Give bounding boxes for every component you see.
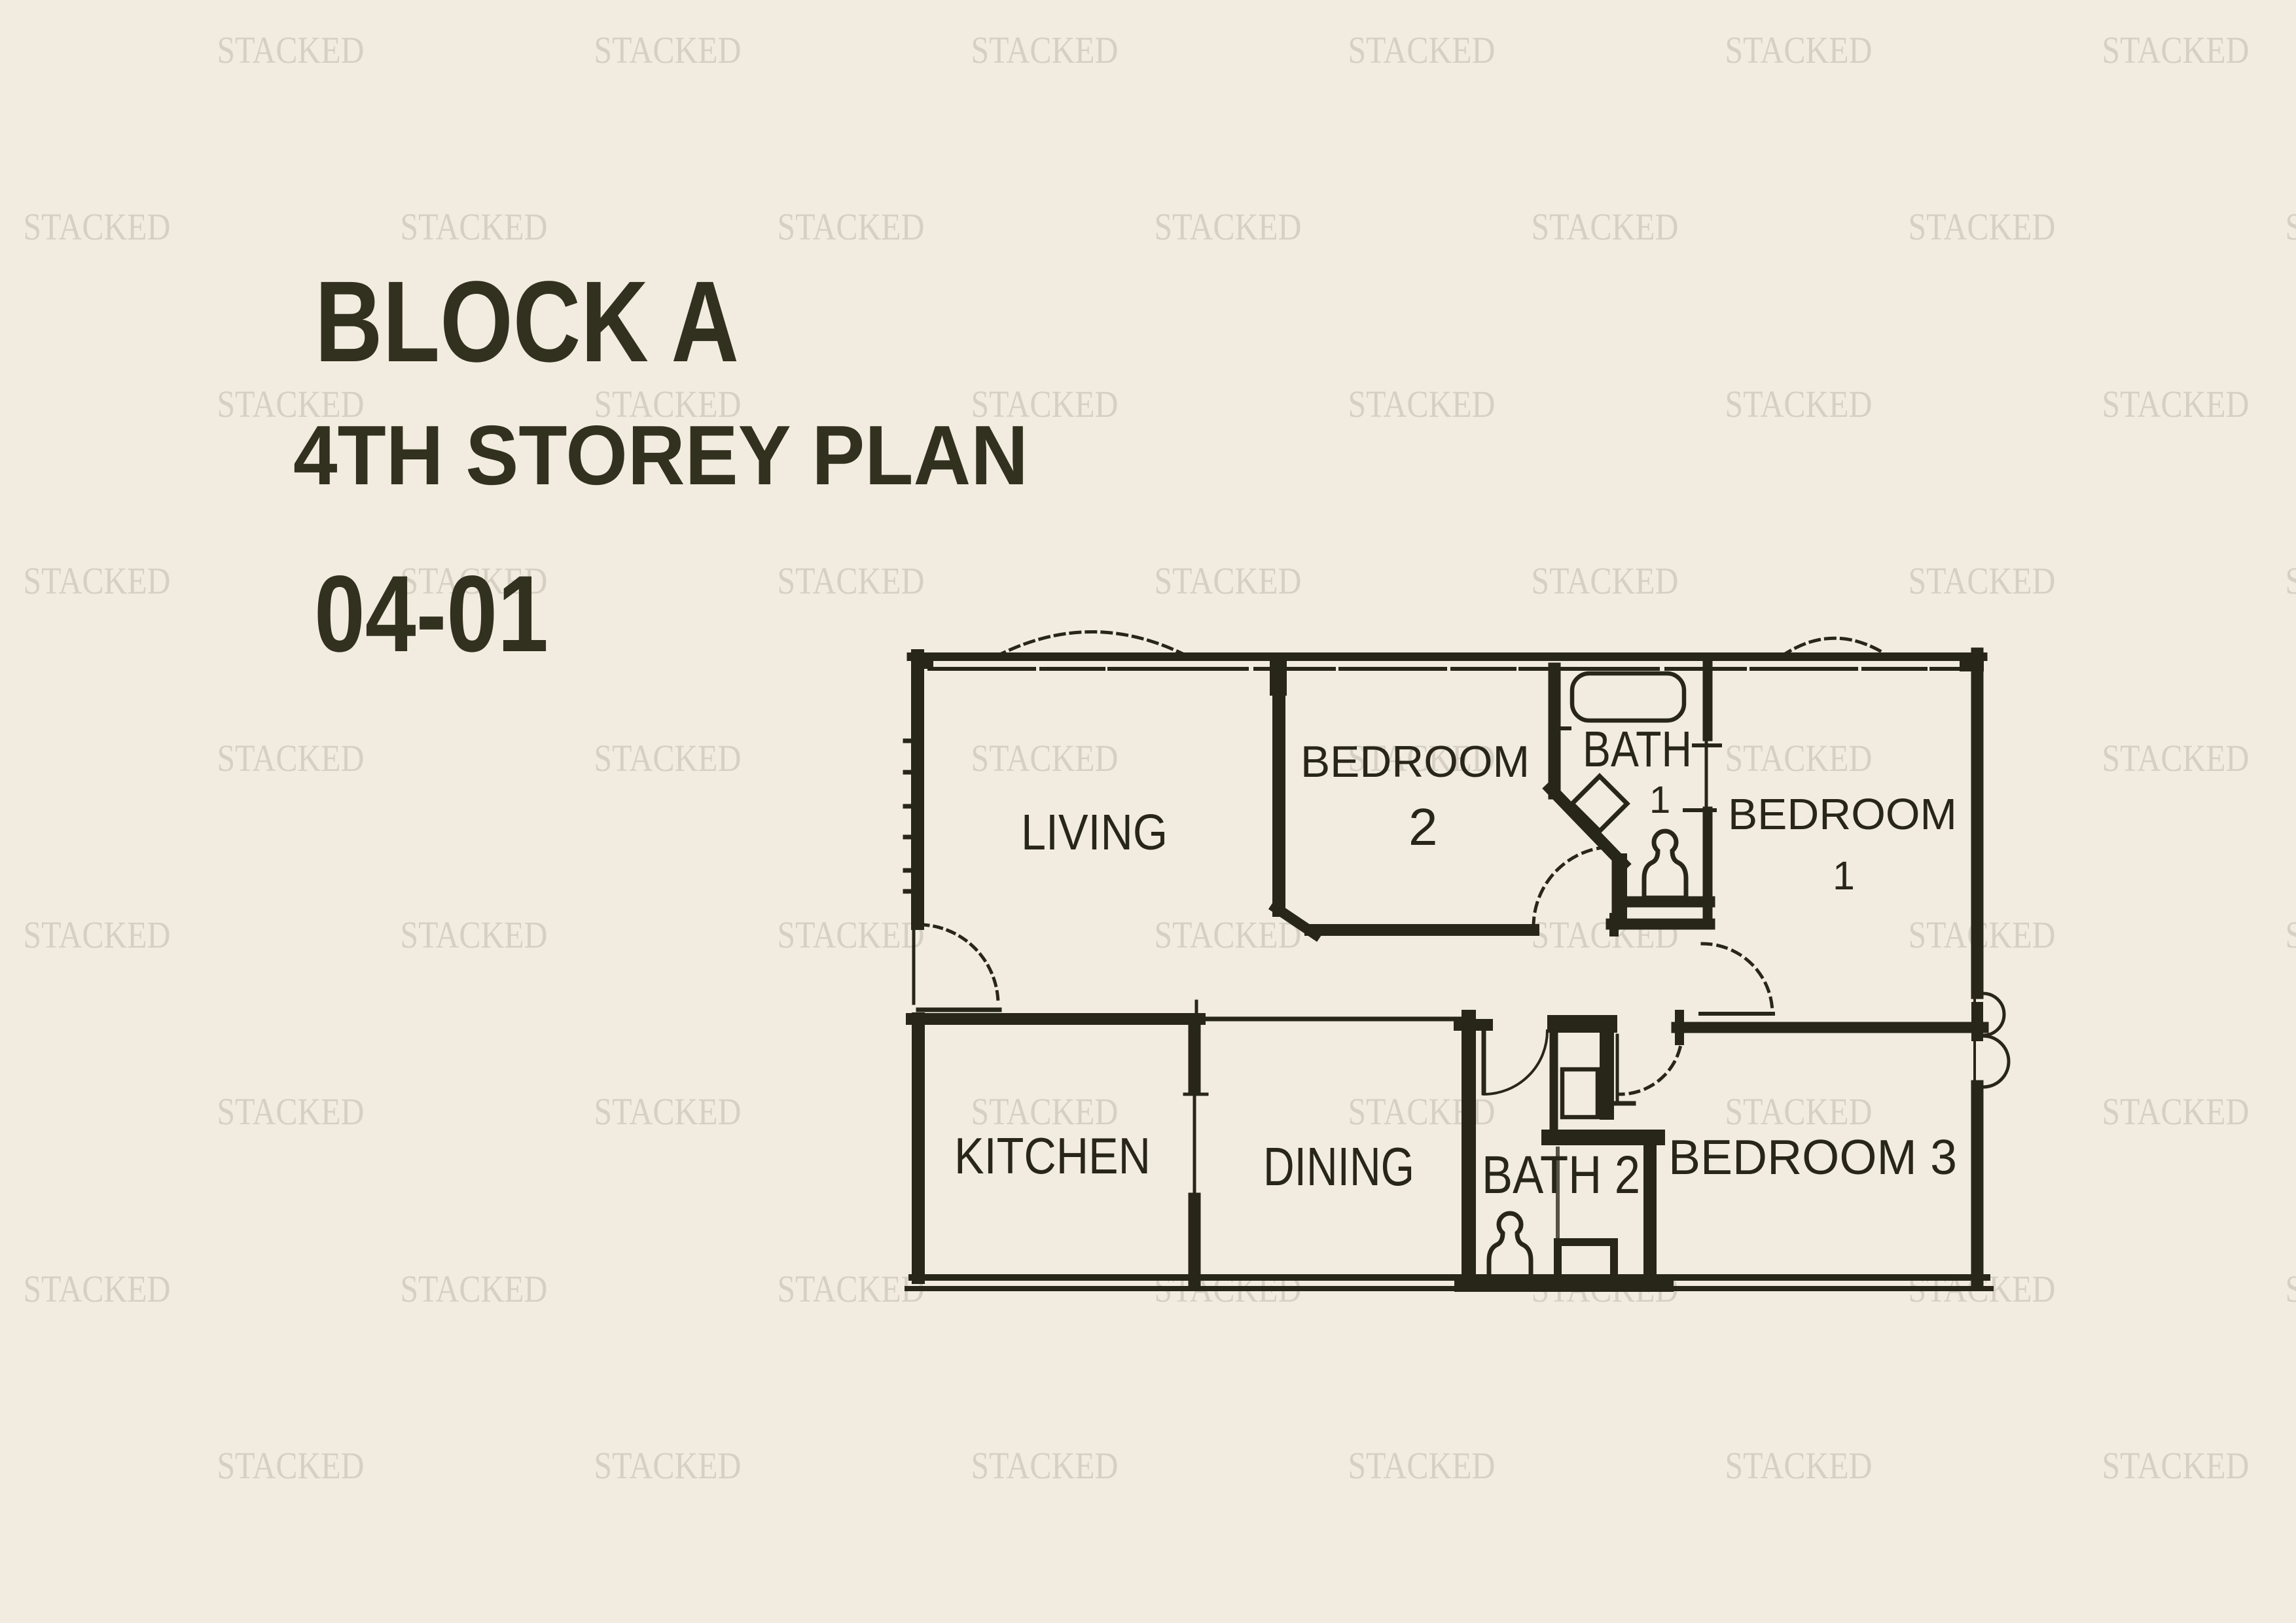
svg-text:STACKED: STACKED xyxy=(2102,29,2250,71)
svg-text:4TH STOREY PLAN: 4TH STOREY PLAN xyxy=(293,408,1028,503)
svg-text:STACKED: STACKED xyxy=(2286,914,2296,956)
svg-text:STACKED: STACKED xyxy=(2102,383,2250,425)
svg-text:STACKED: STACKED xyxy=(1155,560,1302,602)
svg-text:STACKED: STACKED xyxy=(1155,205,1302,248)
svg-text:LIVING: LIVING xyxy=(1021,804,1168,861)
svg-text:STACKED: STACKED xyxy=(24,205,171,248)
svg-text:STACKED: STACKED xyxy=(1155,914,1302,956)
svg-text:STACKED: STACKED xyxy=(594,1090,742,1133)
svg-text:2: 2 xyxy=(1408,798,1438,856)
svg-text:STACKED: STACKED xyxy=(217,1090,365,1133)
svg-text:STACKED: STACKED xyxy=(1348,1444,1496,1487)
svg-text:STACKED: STACKED xyxy=(1725,29,1873,71)
svg-text:STACKED: STACKED xyxy=(401,1268,548,1310)
svg-text:BLOCK A: BLOCK A xyxy=(315,258,739,386)
svg-text:STACKED: STACKED xyxy=(594,737,742,779)
svg-text:STACKED: STACKED xyxy=(1348,29,1496,71)
svg-text:STACKED: STACKED xyxy=(24,1268,171,1310)
svg-text:KITCHEN: KITCHEN xyxy=(954,1127,1151,1185)
svg-text:STACKED: STACKED xyxy=(971,737,1119,779)
svg-text:DINING: DINING xyxy=(1263,1136,1414,1197)
svg-text:BEDROOM: BEDROOM xyxy=(1300,737,1530,787)
svg-text:BEDROOM: BEDROOM xyxy=(1728,790,1957,839)
svg-text:STACKED: STACKED xyxy=(2102,1444,2250,1487)
svg-text:STACKED: STACKED xyxy=(1725,1090,1873,1133)
svg-text:STACKED: STACKED xyxy=(1909,205,2056,248)
svg-text:STACKED: STACKED xyxy=(778,560,925,602)
svg-text:BATH 2: BATH 2 xyxy=(1482,1145,1640,1205)
svg-text:STACKED: STACKED xyxy=(24,914,171,956)
svg-text:STACKED: STACKED xyxy=(1532,560,1679,602)
svg-text:STACKED: STACKED xyxy=(401,205,548,248)
svg-text:BEDROOM 3: BEDROOM 3 xyxy=(1668,1130,1957,1185)
svg-text:STACKED: STACKED xyxy=(217,29,365,71)
svg-text:STACKED: STACKED xyxy=(2102,1090,2250,1133)
svg-text:STACKED: STACKED xyxy=(594,29,742,71)
svg-text:STACKED: STACKED xyxy=(778,1268,925,1310)
svg-text:04-01: 04-01 xyxy=(314,554,548,675)
svg-text:STACKED: STACKED xyxy=(971,29,1119,71)
svg-text:STACKED: STACKED xyxy=(217,1444,365,1487)
svg-text:STACKED: STACKED xyxy=(778,914,925,956)
svg-text:STACKED: STACKED xyxy=(1532,205,1679,248)
svg-text:STACKED: STACKED xyxy=(401,914,548,956)
svg-text:STACKED: STACKED xyxy=(1725,737,1873,779)
svg-text:STACKED: STACKED xyxy=(1348,383,1496,425)
svg-text:1: 1 xyxy=(1649,779,1670,821)
svg-text:STACKED: STACKED xyxy=(217,737,365,779)
svg-text:STACKED: STACKED xyxy=(1909,560,2056,602)
svg-text:STACKED: STACKED xyxy=(594,1444,742,1487)
svg-text:STACKED: STACKED xyxy=(971,1444,1119,1487)
svg-text:STACKED: STACKED xyxy=(2286,205,2296,248)
svg-text:STACKED: STACKED xyxy=(2286,1268,2296,1310)
svg-text:STACKED: STACKED xyxy=(778,205,925,248)
svg-text:BATH: BATH xyxy=(1583,721,1692,777)
svg-text:1: 1 xyxy=(1833,853,1855,898)
svg-text:STACKED: STACKED xyxy=(2102,737,2250,779)
svg-text:STACKED: STACKED xyxy=(2286,560,2296,602)
svg-text:STACKED: STACKED xyxy=(1725,1444,1873,1487)
svg-text:STACKED: STACKED xyxy=(24,560,171,602)
svg-text:STACKED: STACKED xyxy=(1725,383,1873,425)
